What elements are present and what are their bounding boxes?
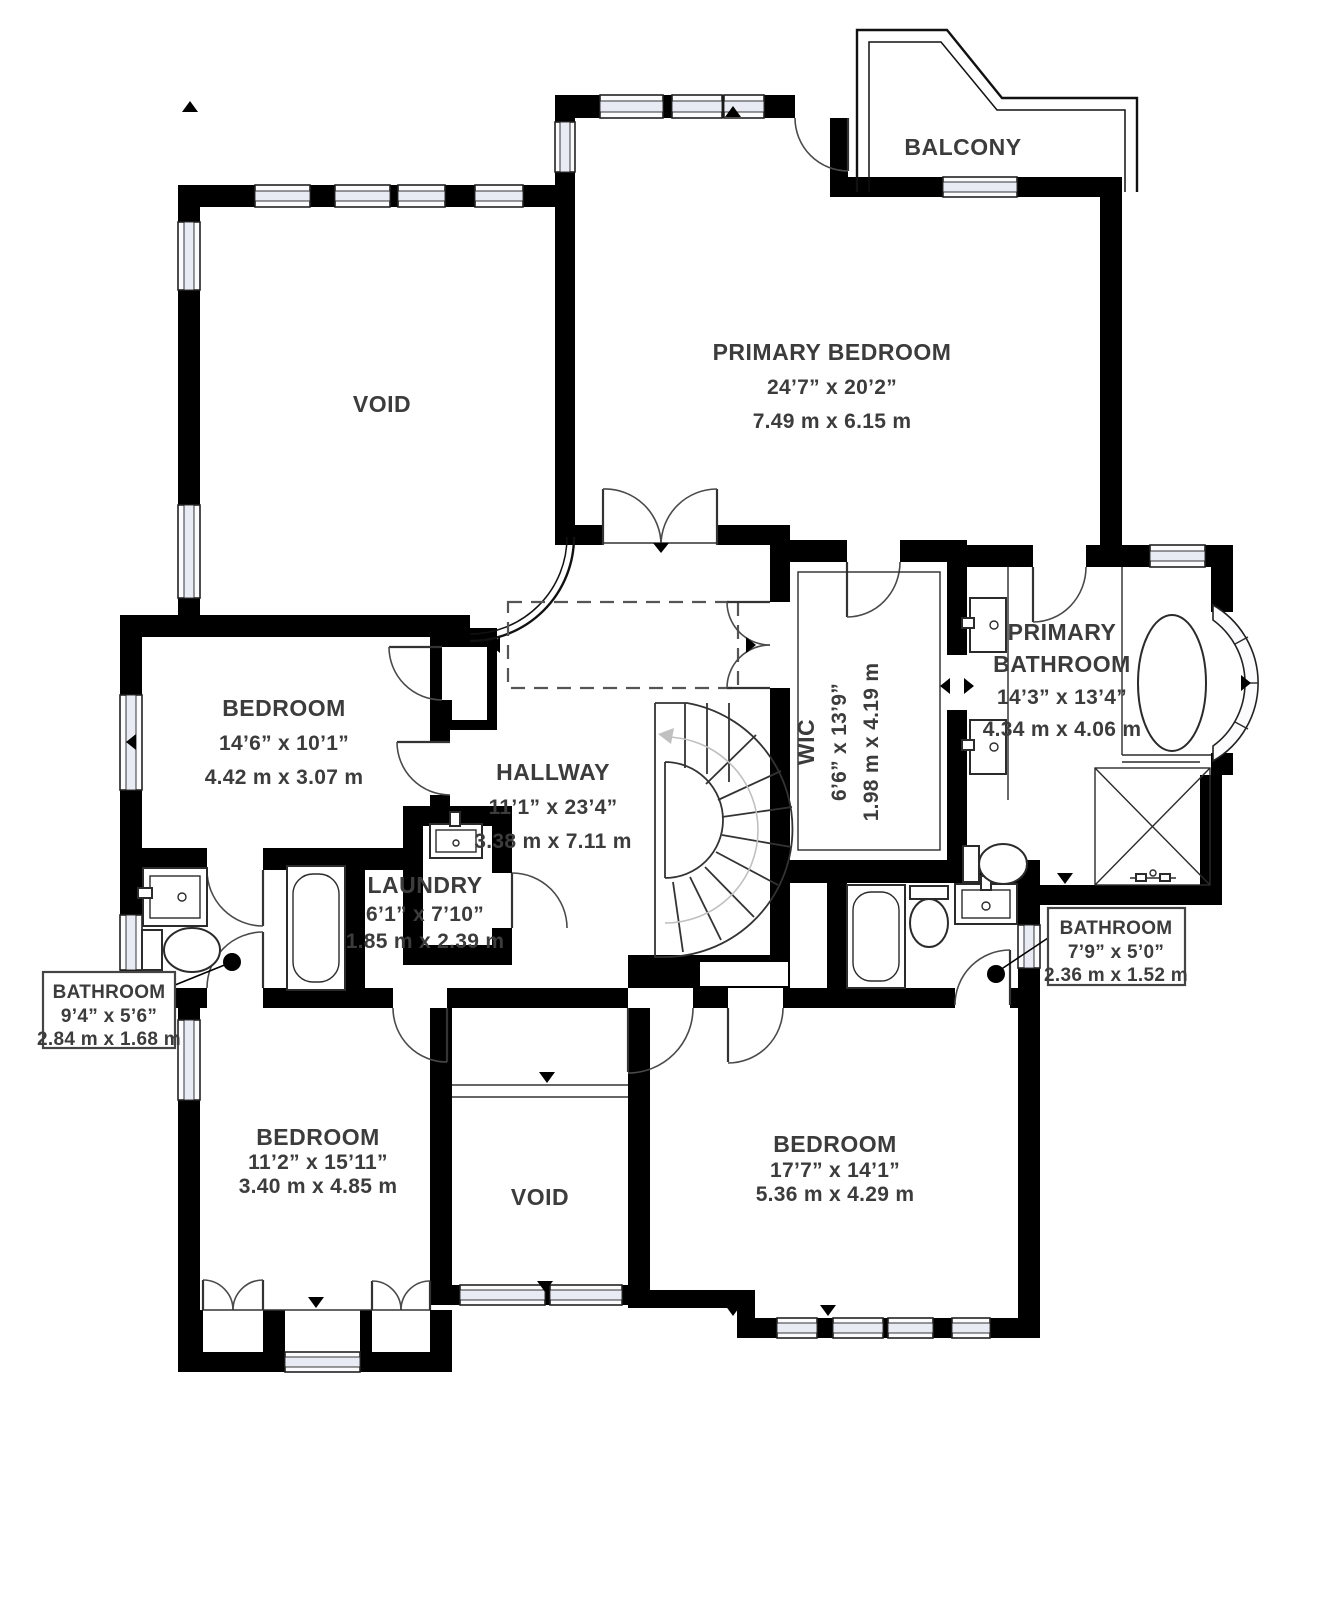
bay-window: [1213, 605, 1258, 761]
opening: [207, 848, 263, 870]
balcony-outer-rail: [857, 30, 1137, 192]
window: [672, 95, 722, 118]
window: [460, 1285, 545, 1305]
door-bathroom-left-north: [207, 870, 263, 926]
toilet-icon: [910, 886, 948, 947]
dashed-zone: [508, 602, 738, 688]
room-dim-metric: 4.42 m x 3.07 m: [205, 766, 364, 789]
bathtub-icon: [847, 885, 905, 988]
door-bedroom-bottom-right-2: [728, 1008, 783, 1063]
room-label-bedroom-left: BEDROOM: [222, 695, 346, 721]
door-laundry: [512, 873, 567, 928]
room-label-laundry: LAUNDRY: [367, 872, 482, 898]
room-dim-metric: 5.36 m x 4.29 m: [756, 1183, 915, 1206]
window: [777, 1318, 817, 1338]
toilet-icon: [963, 844, 1027, 884]
room-label-wic: WIC: [793, 719, 819, 765]
window: [178, 505, 200, 598]
opening: [430, 742, 450, 795]
window: [550, 1285, 622, 1305]
window: [943, 177, 1017, 197]
room-dim-imperial: 14’6” x 10’1”: [219, 732, 349, 755]
room-dim-imperial: 11’1” x 23’4”: [489, 796, 618, 819]
window: [178, 1020, 200, 1100]
sink-icon: [962, 598, 1006, 652]
direction-marker: [820, 1305, 836, 1316]
window: [1018, 925, 1040, 968]
window: [398, 185, 445, 207]
curved-wall-inner: [470, 537, 567, 634]
room-dim-metric: 3.40 m x 4.85 m: [239, 1175, 398, 1198]
room-dim-imperial: 6’1” x 7’10”: [366, 903, 484, 926]
window: [120, 915, 142, 970]
opening: [1033, 545, 1086, 567]
room-dim-metric: 7.49 m x 6.15 m: [753, 410, 912, 433]
opening: [728, 988, 783, 1008]
room-dim-metric: 3.38 m x 7.11 m: [474, 830, 631, 853]
opening: [955, 988, 1010, 1008]
room-dim-imperial: 7’9” x 5’0”: [1068, 942, 1164, 963]
room-label-balcony: BALCONY: [904, 134, 1021, 160]
room-label-void-bottom: VOID: [511, 1184, 569, 1210]
direction-marker: [746, 637, 756, 653]
window: [952, 1318, 990, 1338]
room-labels: PRIMARY BEDROOM 24’7” x 20’2” 7.49 m x 6…: [37, 134, 1188, 1210]
room-dim-imperial: 6’6” x 13’9”: [828, 683, 851, 801]
door-primary-bathroom: [1033, 567, 1086, 622]
room-label-hallway: HALLWAY: [496, 759, 610, 785]
room-dim-metric: 2.36 m x 1.52 m: [1044, 965, 1188, 986]
window: [888, 1318, 933, 1338]
balcony-inner-rail: [869, 42, 1125, 192]
room-label-primary-bathroom: BATHROOM: [993, 651, 1131, 677]
room-label-bedroom-bottom-right: BEDROOM: [773, 1131, 897, 1157]
opening: [442, 647, 452, 700]
opening: [492, 873, 512, 928]
french-doors-left: [203, 1280, 263, 1310]
stair-inner-curve: [665, 762, 723, 878]
opening: [770, 602, 790, 688]
window: [178, 222, 200, 290]
floorplan-page: PRIMARY BEDROOM 24’7” x 20’2” 7.49 m x 6…: [0, 0, 1338, 1616]
direction-marker: [940, 678, 950, 694]
opening: [207, 988, 263, 1008]
room-label-primary-bedroom: PRIMARY BEDROOM: [713, 339, 952, 365]
room-label-primary-bathroom: PRIMARY: [1008, 619, 1117, 645]
window: [600, 95, 663, 118]
closet-interior: [452, 647, 487, 720]
stair-walkline-arrow: [658, 728, 674, 744]
room-label-void-top: VOID: [353, 391, 411, 417]
opening: [795, 95, 848, 118]
opening: [628, 988, 693, 1008]
room-dim-metric: 1.85 m x 2.39 m: [346, 930, 505, 953]
window: [475, 185, 523, 207]
shower-icon: [1095, 768, 1210, 885]
toilet-icon: [142, 928, 241, 972]
window: [255, 185, 310, 207]
direction-marker: [964, 678, 974, 694]
direction-marker: [539, 1072, 555, 1083]
window: [833, 1318, 883, 1338]
room-dim-imperial: 17’7” x 14’1”: [770, 1159, 900, 1182]
sink-icon: [138, 868, 207, 926]
door-wic: [847, 562, 900, 617]
french-doors-right: [372, 1281, 430, 1310]
room-dim-imperial: 14’3” x 13’4”: [997, 686, 1127, 709]
room-dim-imperial: 11’2” x 15’11”: [248, 1151, 388, 1174]
window: [285, 1352, 360, 1372]
room-dim-metric: 4.34 m x 4.06 m: [983, 718, 1142, 741]
room-dim-imperial: 9’4” x 5’6”: [61, 1006, 157, 1027]
opening: [393, 988, 447, 1008]
hall-niche: [700, 962, 788, 986]
direction-marker: [308, 1297, 324, 1308]
window: [335, 185, 390, 207]
curved-wall-outer: [470, 537, 574, 641]
room-label-bathroom-right: BATHROOM: [1060, 918, 1173, 939]
floorplan-canvas: PRIMARY BEDROOM 24’7” x 20’2” 7.49 m x 6…: [0, 0, 1338, 1616]
window: [1150, 545, 1205, 567]
balcony-outline: [857, 30, 1137, 192]
room-label-bedroom-bottom-left: BEDROOM: [256, 1124, 380, 1150]
stair-walkline: [665, 737, 758, 923]
bathtub-icon: [287, 866, 345, 990]
room-label-bathroom-left: BATHROOM: [53, 982, 166, 1003]
window: [555, 122, 575, 172]
opening: [847, 540, 900, 562]
direction-marker: [1057, 873, 1073, 884]
direction-marker: [182, 101, 198, 112]
room-dim-imperial: 24’7” x 20’2”: [767, 376, 897, 399]
direction-marker: [653, 543, 669, 553]
room-dim-metric: 2.84 m x 1.68 m: [37, 1029, 181, 1050]
room-dim-metric: 1.98 m x 4.19 m: [860, 663, 883, 822]
